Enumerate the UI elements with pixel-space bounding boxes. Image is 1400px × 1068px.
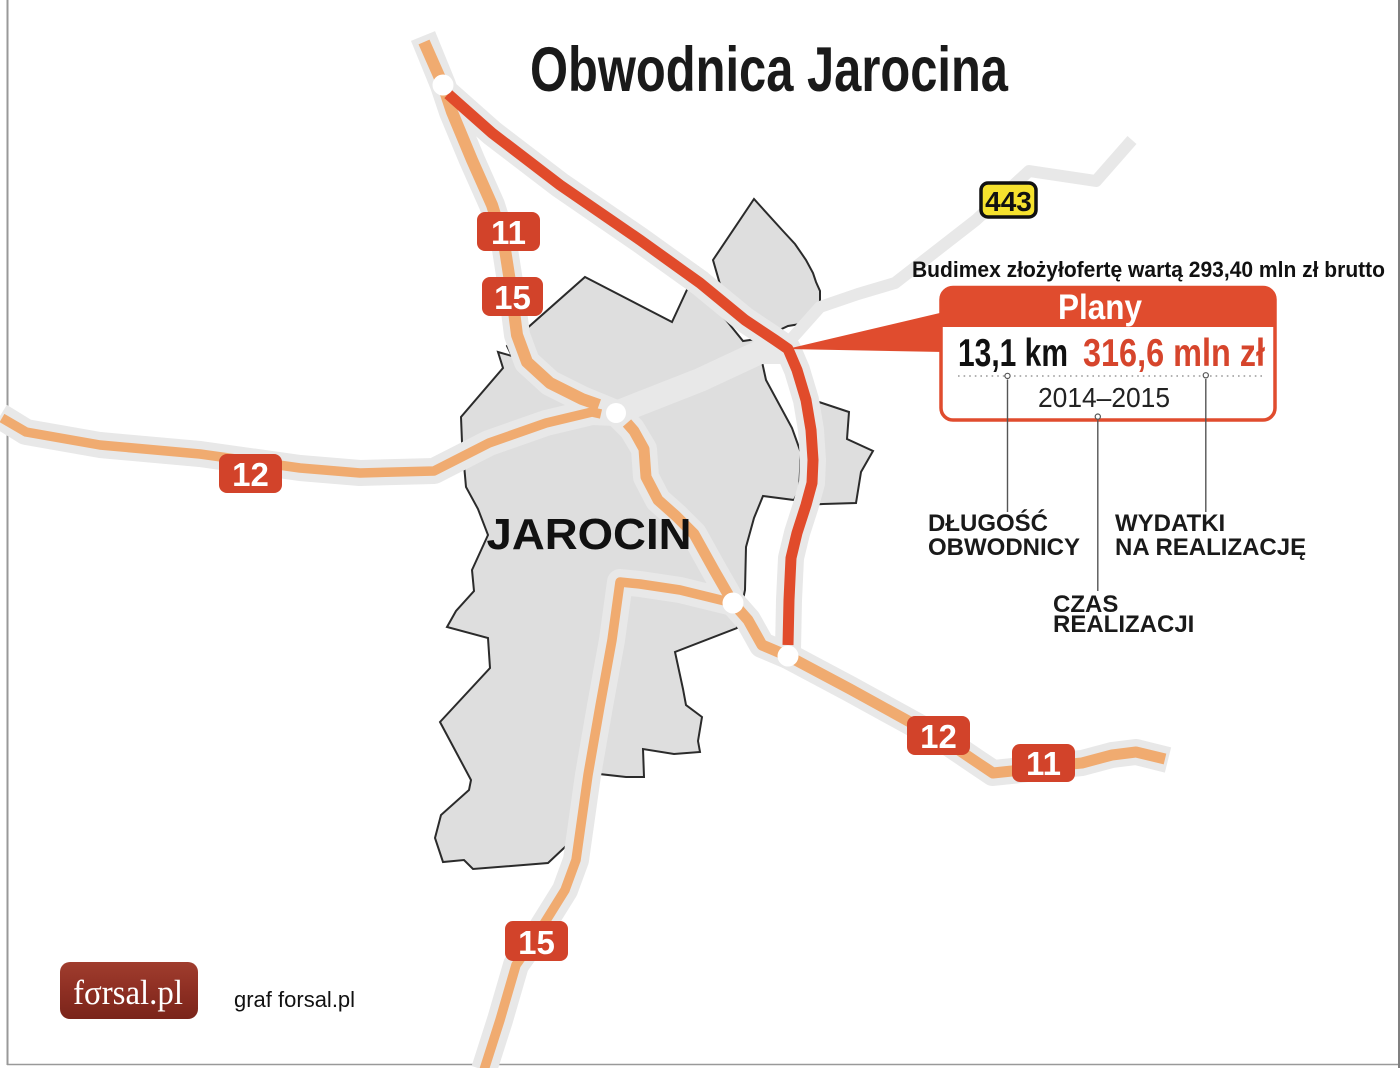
svg-text:15: 15 — [494, 279, 531, 316]
svg-text:12: 12 — [920, 718, 957, 755]
svg-text:WYDATKI: WYDATKI — [1115, 510, 1225, 537]
svg-text:15: 15 — [518, 924, 555, 961]
svg-text:OBWODNICY: OBWODNICY — [928, 534, 1080, 561]
svg-text:13,1 km: 13,1 km — [958, 332, 1068, 375]
svg-text:JAROCIN: JAROCIN — [487, 510, 692, 559]
svg-text:Budimex złożyłofertę wartą 293: Budimex złożyłofertę wartą 293,40 mln zł… — [912, 257, 1385, 282]
svg-text:Obwodnica Jarocina: Obwodnica Jarocina — [530, 35, 1009, 105]
svg-text:12: 12 — [232, 456, 269, 493]
svg-text:11: 11 — [1026, 745, 1061, 782]
svg-text:fσrsal.pl: fσrsal.pl — [73, 973, 183, 1012]
svg-text:Plany: Plany — [1058, 288, 1142, 327]
svg-text:443: 443 — [985, 186, 1032, 217]
svg-text:NA REALIZACJĘ: NA REALIZACJĘ — [1115, 534, 1306, 561]
svg-text:graf forsal.pl: graf forsal.pl — [234, 987, 355, 1012]
svg-text:2014–2015: 2014–2015 — [1038, 382, 1170, 413]
svg-text:DŁUGOŚĆ: DŁUGOŚĆ — [928, 509, 1048, 537]
svg-text:REALIZACJI: REALIZACJI — [1053, 611, 1194, 638]
svg-text:316,6 mln zł: 316,6 mln zł — [1083, 332, 1265, 375]
svg-text:11: 11 — [491, 214, 526, 251]
